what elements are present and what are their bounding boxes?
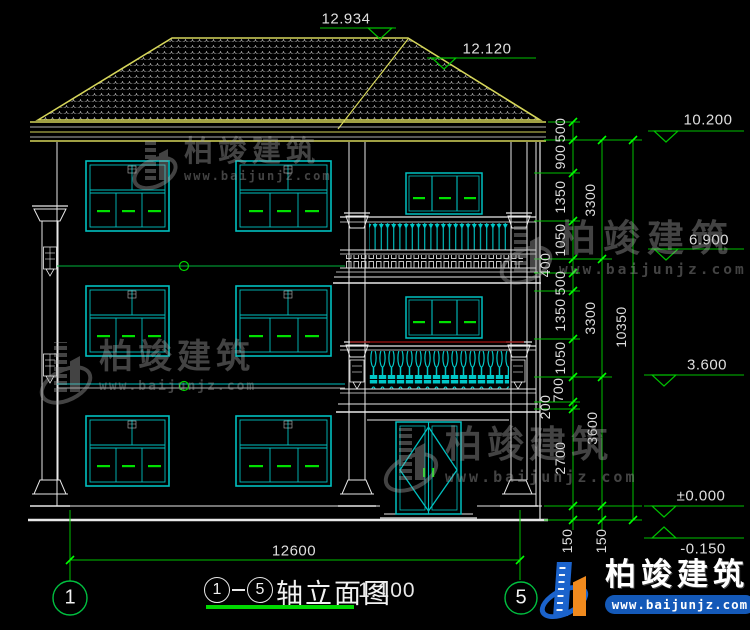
balcony-second-floor — [336, 342, 540, 412]
watermark-logo-icon — [40, 340, 90, 402]
dim-inner-7: 1050 — [552, 341, 568, 374]
drawing-scale: 1:100 — [358, 579, 416, 603]
level-second: 3.600 — [687, 357, 727, 374]
dim-inner-6: 1350 — [552, 298, 568, 331]
watermark-company: 柏竣建筑 — [559, 220, 747, 259]
dim-inner-1: 900 — [552, 145, 568, 170]
title-dash — [232, 589, 245, 591]
dim-inner-0: 500 — [552, 118, 568, 143]
watermark: 柏竣建筑 www.baijunjz.com — [40, 340, 256, 402]
watermark-company: 柏竣建筑 — [184, 136, 332, 166]
watermark-website: www.baijunjz.com — [99, 379, 256, 394]
axis-bubble-5: 5 — [515, 587, 526, 610]
cad-canvas: 12.934 12.120 10.200 6.900 3.600 ±0.000 … — [0, 0, 750, 630]
watermark-logo-icon — [133, 136, 175, 186]
watermark-website: www.baijunjz.com — [559, 262, 747, 278]
dim-inner-2: 1350 — [552, 180, 568, 213]
brand-website: www.baijunjz.com — [605, 595, 750, 614]
watermark-logo-icon — [384, 426, 436, 490]
watermark-website: www.baijunjz.com — [184, 169, 332, 183]
level-eave: 10.200 — [684, 112, 733, 129]
dim-storey-1: 3300 — [582, 301, 598, 334]
level-zero: ±0.000 — [677, 488, 726, 505]
roof-secondary-elevation: 12.120 — [463, 41, 512, 58]
dim-storey-3: 150 — [593, 529, 609, 554]
watermark-company: 柏竣建筑 — [445, 426, 638, 465]
title-axis-right: 5 — [247, 577, 273, 603]
dim-total-height: 10350 — [613, 306, 629, 347]
dim-inner-9: 200 — [537, 395, 553, 420]
title-underline — [206, 605, 354, 609]
watermark-website: www.baijunjz.com — [445, 468, 638, 486]
brand-logo-icon — [538, 558, 598, 624]
dim-total-width: 12600 — [272, 543, 316, 560]
brand-company: 柏竣建筑 — [605, 558, 750, 592]
watermark: 柏竣建筑 www.baijunjz.com — [500, 220, 747, 282]
watermark: 柏竣建筑 www.baijunjz.com — [384, 426, 638, 490]
dim-inner-11: 150 — [559, 529, 575, 554]
watermark-logo-icon — [500, 220, 550, 282]
watermark: 柏竣建筑 www.baijunjz.com — [133, 136, 332, 186]
dim-storey-0: 3300 — [582, 183, 598, 216]
title-axis-left: 1 — [204, 577, 230, 603]
level-ground: -0.150 — [680, 541, 726, 558]
watermark-company: 柏竣建筑 — [99, 340, 256, 376]
elevation-linework — [0, 0, 750, 630]
axis-bubble-1: 1 — [64, 587, 75, 610]
roof-ridge-elevation: 12.934 — [322, 11, 371, 28]
brand-logo: 柏竣建筑 www.baijunjz.com — [538, 558, 750, 624]
